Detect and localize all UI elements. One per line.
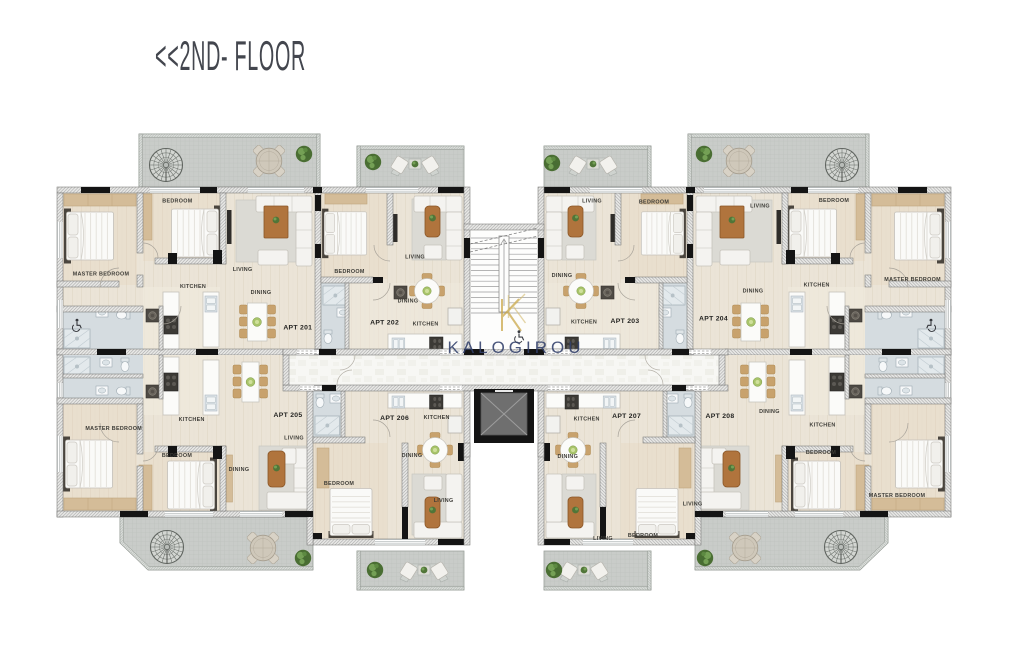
svg-text:KITCHEN: KITCHEN bbox=[179, 417, 205, 423]
svg-text:BEDROOM: BEDROOM bbox=[334, 269, 364, 275]
svg-text:DINING: DINING bbox=[251, 290, 272, 296]
svg-text:KITCHEN: KITCHEN bbox=[804, 283, 830, 289]
svg-text:KITCHEN: KITCHEN bbox=[424, 415, 450, 421]
svg-text:APT 208: APT 208 bbox=[706, 413, 735, 420]
svg-text:DINING: DINING bbox=[402, 453, 423, 459]
svg-text:KITCHEN: KITCHEN bbox=[180, 284, 206, 290]
svg-text:LIVING: LIVING bbox=[405, 255, 425, 261]
svg-text:KALOGIROU: KALOGIROU bbox=[447, 338, 584, 357]
svg-text:BEDROOM: BEDROOM bbox=[819, 198, 849, 204]
svg-text:DINING: DINING bbox=[759, 409, 780, 415]
svg-text:APT 203: APT 203 bbox=[611, 318, 640, 325]
svg-text:APT 204: APT 204 bbox=[699, 315, 728, 322]
svg-text:BEDROOM: BEDROOM bbox=[324, 481, 354, 487]
svg-text:APT 207: APT 207 bbox=[612, 413, 641, 420]
svg-text:<<2ND- FLOOR: <<2ND- FLOOR bbox=[155, 32, 306, 79]
svg-text:BEDROOM: BEDROOM bbox=[639, 200, 669, 206]
svg-text:KITCHEN: KITCHEN bbox=[574, 416, 600, 422]
svg-text:LIVING: LIVING bbox=[233, 267, 253, 273]
svg-text:KITCHEN: KITCHEN bbox=[413, 321, 439, 327]
svg-text:MASTER BEDROOM: MASTER BEDROOM bbox=[85, 426, 142, 432]
svg-text:APT 202: APT 202 bbox=[370, 320, 399, 327]
svg-text:BEDROOM: BEDROOM bbox=[806, 450, 836, 456]
svg-text:APT 201: APT 201 bbox=[283, 324, 312, 331]
svg-text:DINING: DINING bbox=[557, 454, 578, 460]
svg-text:BEDROOM: BEDROOM bbox=[628, 533, 658, 539]
svg-text:LIVING: LIVING bbox=[593, 536, 613, 542]
svg-text:APT 205: APT 205 bbox=[274, 412, 303, 419]
svg-text:MASTER BEDROOM: MASTER BEDROOM bbox=[884, 277, 941, 283]
svg-text:BEDROOM: BEDROOM bbox=[162, 198, 192, 204]
svg-text:LIVING: LIVING bbox=[284, 436, 304, 442]
svg-text:APT 206: APT 206 bbox=[380, 415, 409, 422]
svg-text:MASTER BEDROOM: MASTER BEDROOM bbox=[73, 272, 130, 278]
svg-text:BEDROOM: BEDROOM bbox=[162, 453, 192, 459]
svg-text:KITCHEN: KITCHEN bbox=[571, 320, 597, 326]
svg-text:DINING: DINING bbox=[743, 289, 764, 295]
svg-text:LIVING: LIVING bbox=[750, 204, 770, 210]
svg-text:DINING: DINING bbox=[229, 467, 250, 473]
svg-text:DINING: DINING bbox=[398, 298, 419, 304]
svg-text:LIVING: LIVING bbox=[582, 198, 602, 204]
svg-text:DINING: DINING bbox=[552, 273, 573, 279]
svg-text:MASTER BEDROOM: MASTER BEDROOM bbox=[869, 493, 926, 499]
svg-text:LIVING: LIVING bbox=[434, 498, 454, 504]
svg-text:LIVING: LIVING bbox=[683, 502, 703, 508]
svg-text:KITCHEN: KITCHEN bbox=[809, 423, 835, 429]
